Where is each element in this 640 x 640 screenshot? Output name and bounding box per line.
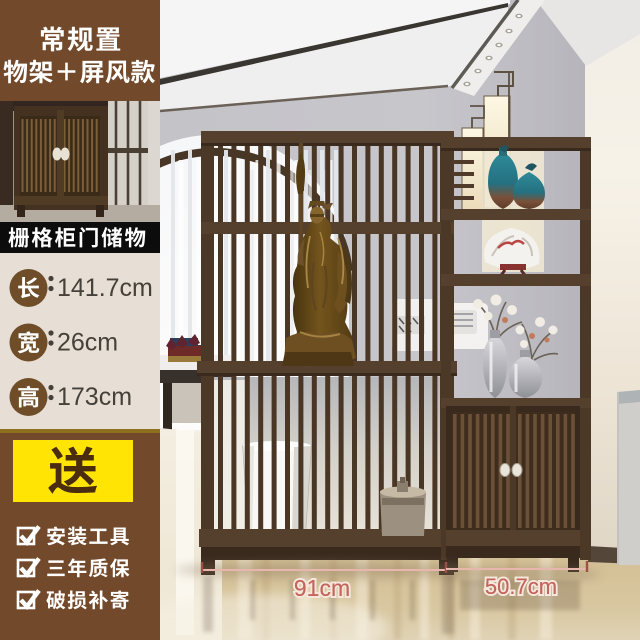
svg-text:26cm: 26cm — [57, 329, 118, 357]
svg-text:141.7cm: 141.7cm — [57, 274, 153, 302]
svg-text:173cm: 173cm — [57, 383, 132, 411]
svg-text:91cm: 91cm — [294, 575, 350, 601]
svg-text:50.7cm: 50.7cm — [485, 574, 557, 599]
